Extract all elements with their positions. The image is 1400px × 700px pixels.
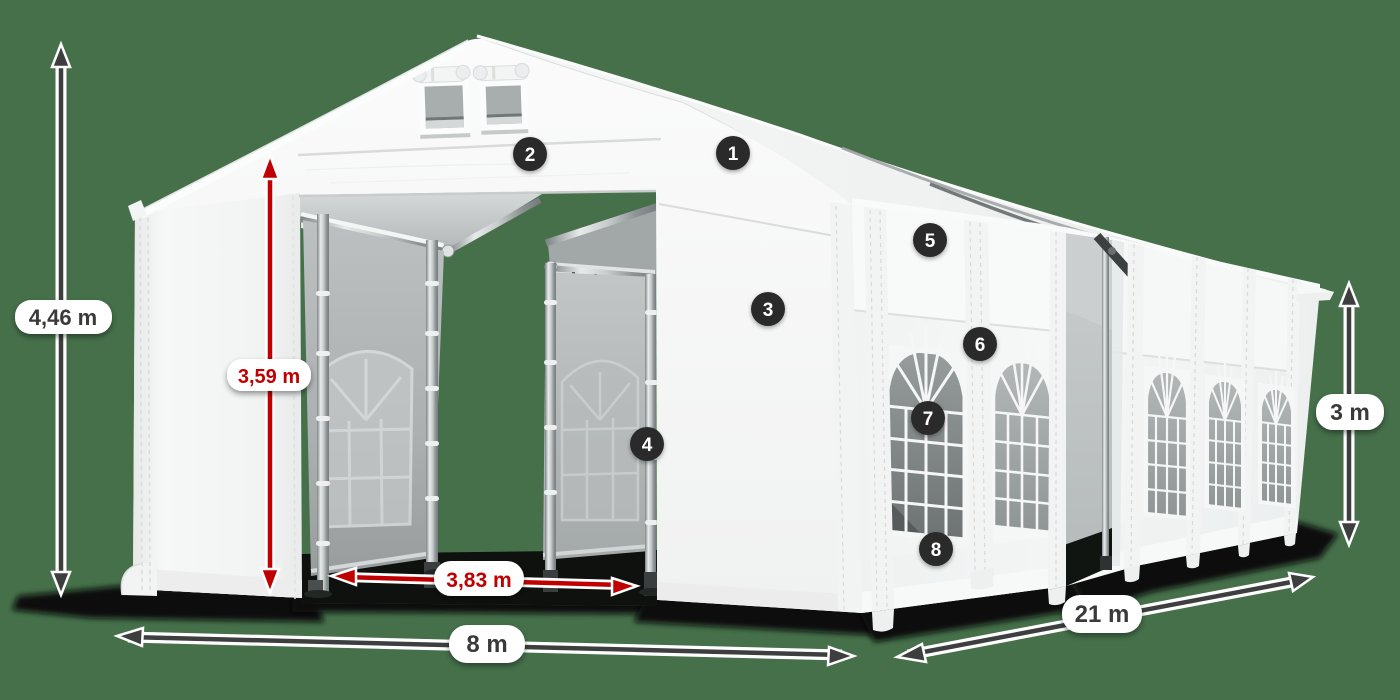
svg-text:3,59 m: 3,59 m: [238, 366, 300, 388]
svg-text:21 m: 21 m: [1075, 601, 1130, 628]
svg-text:2: 2: [525, 145, 536, 166]
svg-text:8: 8: [931, 540, 942, 561]
svg-text:4: 4: [642, 435, 653, 456]
svg-text:4,46 m: 4,46 m: [29, 305, 98, 330]
svg-text:3: 3: [763, 300, 774, 321]
svg-text:5: 5: [925, 231, 936, 252]
svg-text:6: 6: [975, 335, 986, 356]
svg-text:8 m: 8 m: [466, 631, 507, 658]
svg-text:1: 1: [728, 144, 739, 165]
svg-text:3 m: 3 m: [1330, 399, 1370, 425]
svg-text:3,83 m: 3,83 m: [446, 569, 511, 592]
svg-text:7: 7: [923, 409, 934, 430]
